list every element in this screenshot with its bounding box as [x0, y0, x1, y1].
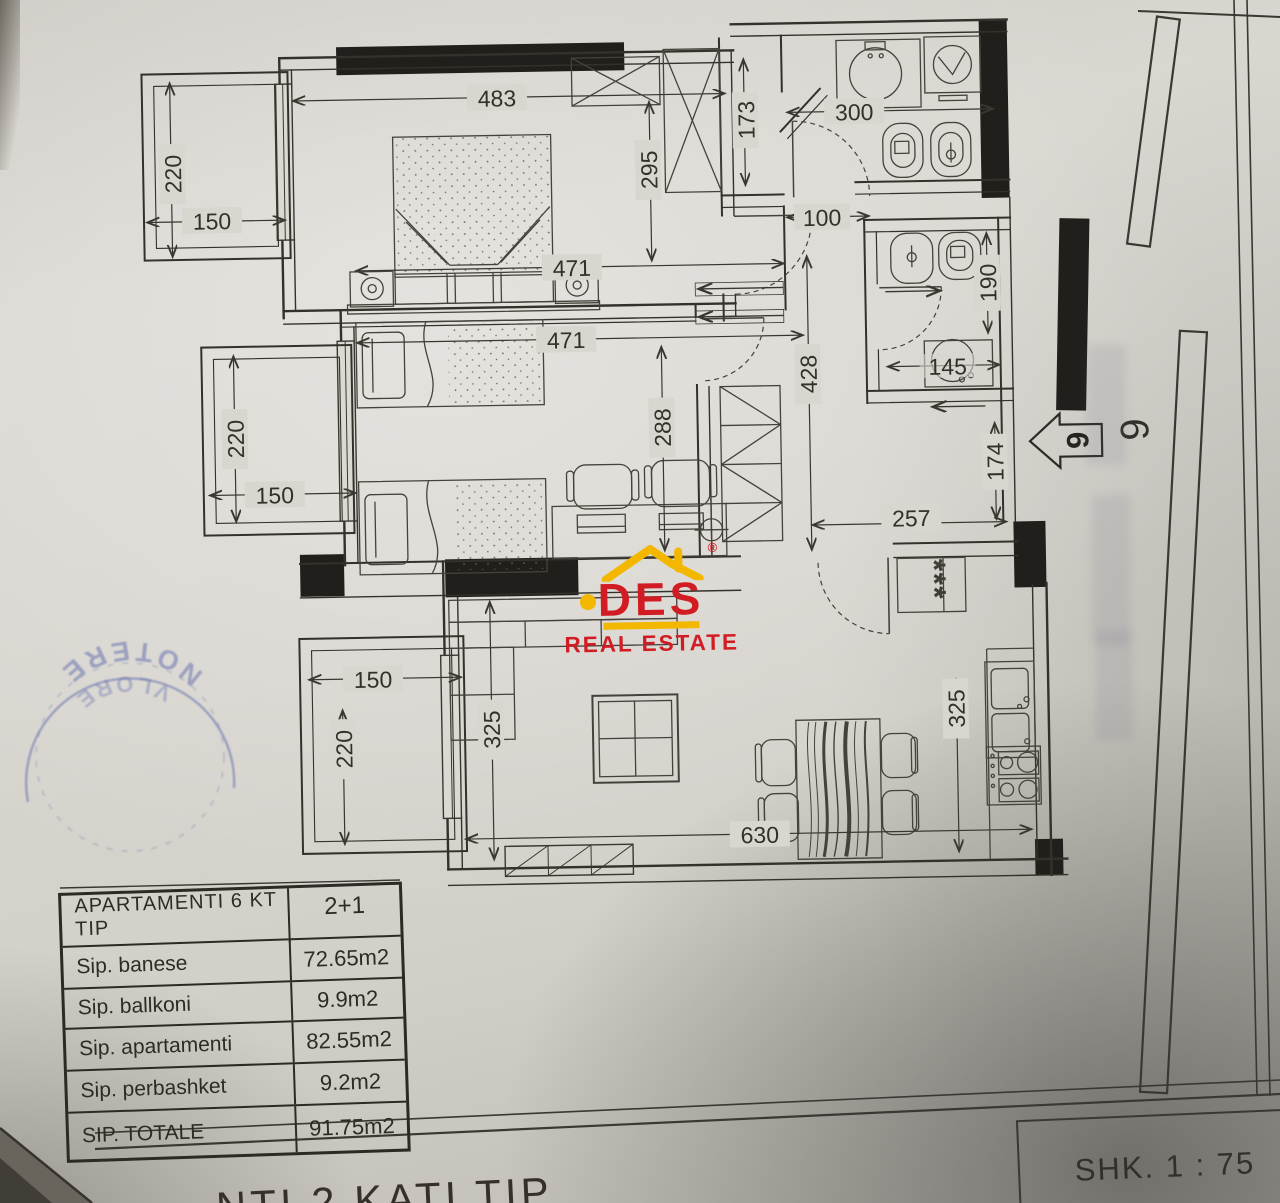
- row-value: 9.9m2: [290, 979, 403, 1021]
- row-label: Sip. perbashket: [67, 1064, 294, 1111]
- logo-brand-text: DES: [556, 577, 747, 620]
- notary-stamp: NOTERE VLORE: [26, 635, 234, 851]
- bleed-through-smudge: [1086, 345, 1126, 465]
- bleed-through-smudge: [1096, 630, 1132, 740]
- table-header-value: 2+1: [287, 885, 401, 943]
- row-label: Sip. apartamenti: [66, 1022, 293, 1069]
- kitchen-sink: [985, 661, 1036, 758]
- coffee-table: [592, 694, 679, 782]
- apartment-plan: 6 6: [141, 17, 1164, 890]
- hall-shelf: [720, 386, 783, 542]
- dim-balcony-top-w: 150: [193, 208, 232, 235]
- dim-living-width: 630: [740, 822, 779, 849]
- dim-kids-width: 471: [547, 327, 586, 354]
- stove: [986, 746, 1041, 805]
- dim-balcony-mid-w: 150: [255, 482, 294, 509]
- dim-bedroom-depth: 295: [636, 150, 663, 189]
- dim-hall-height: 428: [795, 355, 822, 394]
- table-row: APARTAMENTI 6 KT TIP 2+1: [61, 885, 400, 946]
- dim-closet-height: 173: [733, 101, 760, 140]
- scale-label: SHK. 1 : 75: [1074, 1145, 1256, 1189]
- master-bedroom-furniture: [343, 49, 723, 315]
- apartment-area-table: APARTAMENTI 6 KT TIP 2+1 Sip. banese 72.…: [58, 882, 411, 1163]
- row-label: Sip. ballkoni: [64, 982, 291, 1027]
- fridge-marks: ***: [917, 559, 951, 601]
- washing-machine: [924, 36, 981, 101]
- registered-mark: ®: [707, 540, 717, 555]
- dim-bath-width: 300: [835, 99, 874, 126]
- row-value: 82.55m2: [291, 1019, 404, 1063]
- dim-living-left: 325: [479, 710, 506, 749]
- kids-bedroom-furniture: [356, 316, 783, 575]
- dining-table: [796, 719, 882, 859]
- row-label: Sip. banese: [63, 940, 290, 987]
- logo-tagline: REAL ESTATE: [557, 629, 747, 658]
- dim-bath2-sink: 145: [928, 353, 967, 380]
- dim-hall-width: 100: [803, 204, 842, 231]
- dim-bedroom-width: 483: [478, 85, 517, 112]
- dim-kids-depth: 288: [649, 408, 676, 447]
- row-value: 9.2m2: [293, 1061, 406, 1105]
- dim-balcony-bot-w: 150: [354, 666, 393, 693]
- photo-edge-shadow: [0, 0, 20, 170]
- direction-arrows: [695, 278, 985, 411]
- bleed-through-smudge: [1092, 495, 1130, 645]
- scale-box: SHK. 1 : 75: [1016, 1108, 1280, 1203]
- dim-entry-height: 174: [982, 442, 1009, 481]
- row-value: 72.65m2: [289, 937, 402, 981]
- scanned-floor-plan-photo: 6 6: [0, 0, 1280, 1203]
- logo-dot-icon: [580, 594, 596, 610]
- dim-balcony-top-h: 220: [160, 155, 187, 194]
- dim-bath2-height: 190: [975, 263, 1002, 302]
- dim-balcony-mid-h: 220: [222, 420, 249, 459]
- des-real-estate-logo: ® DES REAL ESTATE: [555, 541, 747, 658]
- dim-hall-bottom-width: 257: [892, 505, 931, 532]
- row-value: 91.75m2: [294, 1103, 407, 1153]
- living-bottom-window: [505, 844, 634, 876]
- dim-balcony-bot-h: 220: [331, 730, 358, 769]
- dim-bedroom-inner: 471: [552, 255, 591, 282]
- row-label: SIP. TOTALE: [68, 1106, 295, 1159]
- dim-living-right: 325: [943, 689, 970, 728]
